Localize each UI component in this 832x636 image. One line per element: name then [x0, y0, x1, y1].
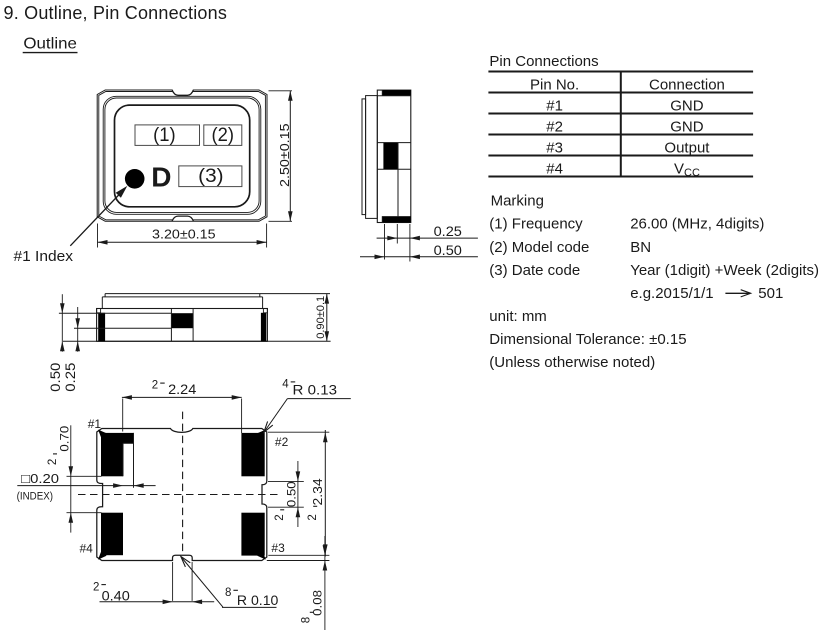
svg-text:VCC: VCC	[674, 160, 700, 179]
svg-text:Pin No.: Pin No.	[530, 76, 579, 93]
svg-text:Marking: Marking	[491, 193, 544, 210]
svg-text:#4: #4	[80, 542, 94, 556]
svg-text:2: 2	[307, 514, 319, 520]
svg-text:0.50: 0.50	[434, 243, 462, 258]
svg-text:(Unless otherwise noted): (Unless otherwise noted)	[489, 354, 655, 371]
svg-text:unit: mm: unit: mm	[489, 308, 547, 325]
svg-text:BN: BN	[630, 239, 651, 256]
svg-text:(1) Frequency: (1) Frequency	[489, 216, 583, 233]
svg-text:#3: #3	[546, 139, 563, 156]
svg-text:Output: Output	[664, 139, 710, 156]
svg-text:9. Outline, Pin Connections: 9. Outline, Pin Connections	[4, 3, 228, 23]
svg-text:(2) Model code: (2) Model code	[489, 239, 589, 256]
svg-text:R 0.10: R 0.10	[237, 592, 279, 608]
svg-text:(1): (1)	[153, 125, 176, 146]
svg-text:0.50: 0.50	[285, 481, 299, 507]
svg-text:2.34: 2.34	[310, 478, 325, 505]
svg-text:0.90±0.1: 0.90±0.1	[315, 296, 327, 339]
svg-text:8: 8	[301, 617, 313, 623]
svg-text:4: 4	[282, 379, 289, 391]
svg-text:0.25: 0.25	[62, 362, 78, 391]
svg-text:2: 2	[152, 380, 158, 392]
svg-text:0.25: 0.25	[434, 224, 462, 239]
svg-text:#2: #2	[275, 435, 289, 449]
svg-text:Connection: Connection	[649, 76, 725, 93]
svg-text:#4: #4	[546, 160, 563, 177]
svg-text:GND: GND	[670, 97, 704, 114]
svg-text:Pin Connections: Pin Connections	[489, 53, 598, 70]
svg-text:#1 Index: #1 Index	[14, 248, 74, 265]
svg-text:0.50: 0.50	[47, 362, 63, 391]
svg-text:Outline: Outline	[23, 35, 77, 52]
svg-text:(3): (3)	[198, 166, 223, 187]
svg-text:0.70: 0.70	[57, 426, 71, 452]
svg-text:#1: #1	[88, 417, 102, 431]
svg-text:Dimensional Tolerance: ±0.15: Dimensional Tolerance: ±0.15	[489, 331, 686, 348]
svg-text:2: 2	[93, 581, 99, 593]
svg-text:(3) Date code: (3) Date code	[489, 262, 580, 279]
svg-text:e.g.2015/1/1: e.g.2015/1/1	[630, 285, 713, 302]
svg-text:D: D	[151, 162, 171, 193]
svg-text:(2): (2)	[212, 125, 235, 146]
svg-text:#1: #1	[546, 97, 563, 114]
svg-text:Year (1digit) +Week (2digits): Year (1digit) +Week (2digits)	[630, 262, 819, 279]
svg-text:26.00 (MHz, 4digits): 26.00 (MHz, 4digits)	[630, 216, 764, 233]
svg-text:0.40: 0.40	[102, 587, 130, 603]
svg-text:□0.20: □0.20	[21, 471, 59, 486]
svg-text:R 0.13: R 0.13	[293, 382, 338, 398]
svg-text:2.24: 2.24	[168, 381, 196, 397]
svg-text:GND: GND	[670, 118, 704, 135]
svg-text:#2: #2	[546, 118, 563, 135]
svg-text:2: 2	[274, 514, 286, 520]
svg-text:#3: #3	[271, 541, 285, 555]
svg-text:3.20±0.15: 3.20±0.15	[152, 227, 216, 242]
svg-text:(INDEX): (INDEX)	[17, 491, 53, 503]
svg-text:2: 2	[47, 459, 59, 465]
svg-text:501: 501	[758, 285, 783, 302]
svg-text:2.50±0.15: 2.50±0.15	[277, 123, 292, 187]
svg-text:8: 8	[225, 587, 231, 599]
